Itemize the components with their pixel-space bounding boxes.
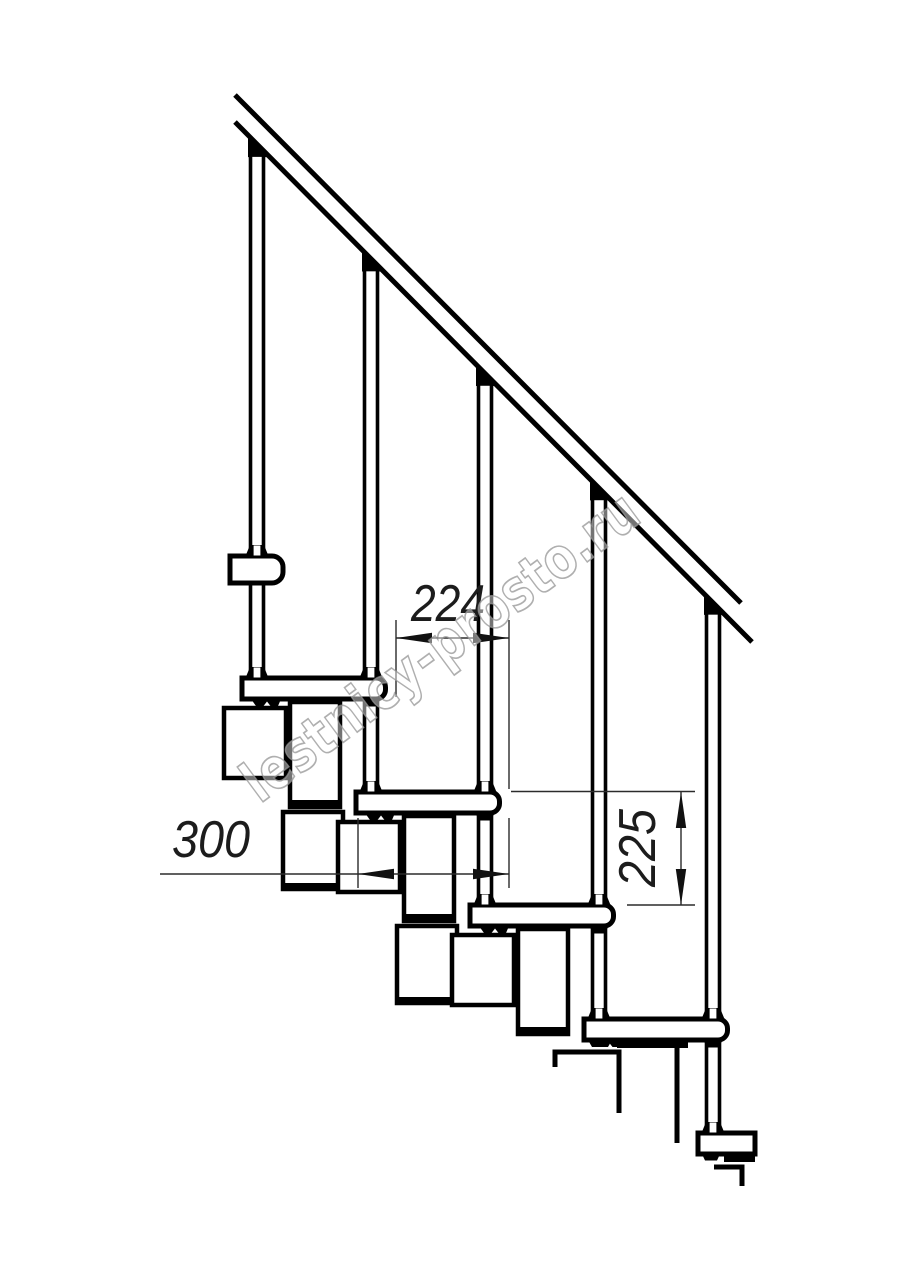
- floor-mount-bar: [724, 1152, 755, 1162]
- dimension-text-tread-depth: 300: [172, 811, 250, 869]
- baluster-collar-gap: [596, 1009, 603, 1019]
- baluster-collar-gap: [368, 782, 375, 792]
- module-arm: [452, 935, 514, 1005]
- module-box: [404, 816, 454, 921]
- drawing-page: 224 300 225 lestnicy-prosto.ru: [0, 0, 914, 1280]
- module-box: [518, 929, 568, 1034]
- baluster-collar-gap: [482, 895, 489, 905]
- baluster-collar-gap: [254, 546, 261, 556]
- baluster-collar-gap: [596, 895, 603, 905]
- baluster-post: [593, 498, 606, 1019]
- tread-mount-clip: [588, 1040, 612, 1047]
- baluster-post: [707, 613, 720, 1133]
- baluster-collar-gap: [710, 1009, 717, 1019]
- dimension-text-riser-height: 225: [609, 808, 667, 888]
- baluster-collar-gap: [482, 782, 489, 792]
- module-arm: [338, 822, 400, 892]
- baluster-collar-gap: [254, 668, 261, 678]
- baluster-post: [251, 155, 264, 678]
- tread-partial: [698, 1133, 755, 1154]
- tread: [356, 792, 500, 813]
- baluster-collar-gap: [710, 1123, 717, 1133]
- module-tube: [283, 812, 343, 889]
- tread: [584, 1019, 728, 1040]
- tread: [470, 905, 614, 926]
- perpendicular-handrail-end: [230, 556, 283, 583]
- handrail-end-profile: [230, 556, 283, 583]
- module-tube: [397, 926, 457, 1003]
- staircase-technical-drawing: 224 300 225 lestnicy-prosto.ru: [0, 0, 914, 1280]
